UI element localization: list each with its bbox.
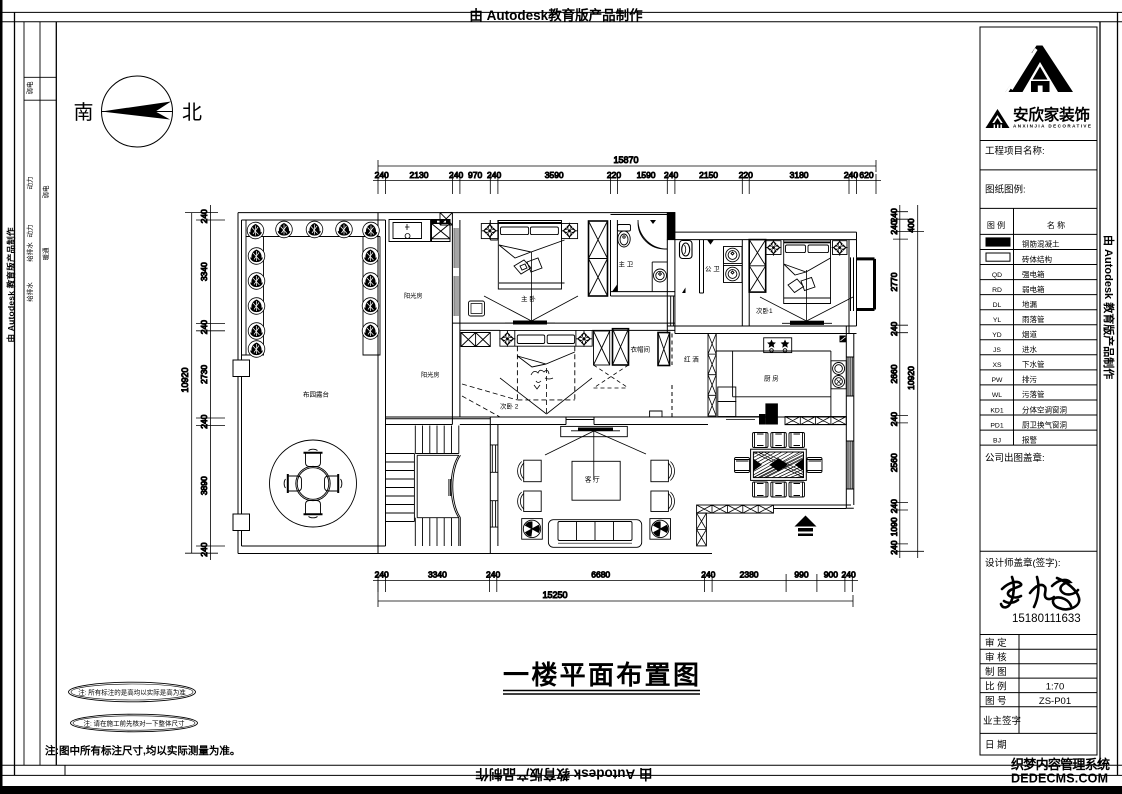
svg-text:DL: DL — [993, 302, 1002, 309]
svg-text:6680: 6680 — [591, 570, 610, 580]
svg-text:2660: 2660 — [889, 364, 899, 383]
svg-text:PW: PW — [992, 377, 1004, 384]
svg-text:地漏: 地漏 — [1022, 299, 1038, 309]
svg-text:1090: 1090 — [889, 517, 899, 536]
svg-text:审 定: 审 定 — [985, 637, 1007, 649]
svg-text:1:70: 1:70 — [1046, 682, 1065, 693]
svg-text:240: 240 — [449, 170, 463, 180]
svg-text:3180: 3180 — [790, 170, 809, 180]
svg-text:动力: 动力 — [25, 225, 34, 238]
svg-text:2560: 2560 — [889, 453, 899, 472]
svg-text:240: 240 — [889, 220, 899, 234]
svg-text:240: 240 — [889, 540, 899, 554]
svg-text:制 图: 制 图 — [985, 666, 1007, 678]
svg-text:公 卫: 公 卫 — [705, 265, 720, 273]
svg-text:分体空调窗洞: 分体空调窗洞 — [1022, 404, 1067, 414]
svg-text:KD1: KD1 — [990, 407, 1003, 414]
svg-text:3340: 3340 — [199, 262, 209, 281]
svg-text:990: 990 — [794, 570, 808, 580]
svg-text:日 期: 日 期 — [985, 740, 1007, 751]
svg-text:10920: 10920 — [906, 366, 916, 390]
svg-text:暖通: 暖通 — [41, 247, 50, 261]
svg-text:弱电: 弱电 — [25, 81, 34, 95]
svg-text:由 Autodesk教育版产品制作: 由 Autodesk教育版产品制作 — [469, 7, 643, 23]
svg-text:强电箱: 强电箱 — [1022, 269, 1045, 279]
svg-text:南: 南 — [74, 101, 94, 124]
svg-text:厨 房: 厨 房 — [764, 374, 779, 383]
svg-text:雨落管: 雨落管 — [1022, 314, 1045, 324]
svg-text:1590: 1590 — [637, 170, 656, 180]
svg-text:报警: 报警 — [1022, 434, 1038, 444]
svg-text:YL: YL — [993, 317, 1002, 324]
svg-text:2380: 2380 — [740, 570, 759, 580]
svg-text:主 卫: 主 卫 — [619, 260, 634, 269]
svg-text:240: 240 — [889, 412, 899, 426]
svg-text:下水管: 下水管 — [1022, 359, 1045, 369]
svg-text:阳光房: 阳光房 — [404, 292, 423, 300]
svg-text:400: 400 — [906, 218, 916, 232]
svg-text:PD1: PD1 — [990, 422, 1003, 429]
svg-text:客 厅: 客 厅 — [585, 475, 600, 484]
svg-text:RD: RD — [992, 287, 1002, 294]
svg-text:业主签字: 业主签字 — [983, 715, 1021, 727]
svg-text:240: 240 — [199, 209, 209, 223]
svg-text:排污: 排污 — [1022, 374, 1038, 384]
svg-text:YD: YD — [992, 332, 1002, 339]
svg-text:公司出图盖章:: 公司出图盖章: — [985, 452, 1045, 464]
svg-text:弱电箱: 弱电箱 — [1022, 284, 1045, 294]
svg-text:名 称: 名 称 — [1047, 220, 1065, 230]
svg-text:注: 请在施工前先核对一下整体尺寸: 注: 请在施工前先核对一下整体尺寸 — [83, 719, 185, 728]
svg-text:北: 北 — [182, 101, 202, 124]
svg-text:2770: 2770 — [889, 272, 899, 291]
svg-text:2150: 2150 — [699, 170, 718, 180]
svg-text:厨卫换气窗洞: 厨卫换气窗洞 — [1022, 419, 1067, 429]
svg-text:红 酒: 红 酒 — [684, 355, 699, 364]
svg-text:图 例: 图 例 — [987, 220, 1005, 230]
svg-text:240: 240 — [664, 170, 678, 180]
svg-text:240: 240 — [199, 414, 209, 428]
svg-text:布园露台: 布园露台 — [303, 390, 329, 399]
svg-text:JS: JS — [993, 347, 1001, 354]
svg-text:240: 240 — [842, 570, 856, 580]
svg-text:衣帽间: 衣帽间 — [631, 345, 651, 354]
svg-text:15870: 15870 — [613, 155, 638, 165]
svg-text:240: 240 — [375, 170, 389, 180]
svg-text:砖体结构: 砖体结构 — [1022, 254, 1052, 264]
svg-text:比 例: 比 例 — [985, 681, 1007, 693]
svg-text:由 Autodesk 教育版产品制作: 由 Autodesk 教育版产品制作 — [1102, 235, 1116, 379]
svg-text:240: 240 — [199, 320, 209, 334]
svg-text:220: 220 — [607, 170, 621, 180]
svg-text:烟道: 烟道 — [1022, 329, 1038, 339]
svg-text:240: 240 — [375, 570, 389, 580]
svg-text:BJ: BJ — [993, 437, 1001, 444]
svg-text:240: 240 — [844, 170, 858, 180]
svg-text:10920: 10920 — [180, 367, 190, 392]
svg-text:一楼平面布置图: 一楼平面布置图 — [503, 660, 699, 690]
svg-text:图 号: 图 号 — [985, 696, 1007, 707]
svg-text:900: 900 — [824, 570, 838, 580]
svg-text:3890: 3890 — [199, 476, 209, 495]
svg-text:安欣家装饰: 安欣家装饰 — [1013, 105, 1090, 124]
svg-text:15250: 15250 — [542, 590, 567, 600]
svg-text:设计师盖章(签字):: 设计师盖章(签字): — [985, 557, 1060, 569]
svg-text:主 卧: 主 卧 — [521, 294, 536, 303]
svg-text:织梦内容管理系统: 织梦内容管理系统 — [1011, 757, 1110, 772]
svg-text:2730: 2730 — [199, 365, 209, 384]
svg-text:2130: 2130 — [410, 170, 429, 180]
svg-text:240: 240 — [487, 170, 501, 180]
svg-text:污落管: 污落管 — [1022, 389, 1045, 399]
svg-text:弱电: 弱电 — [41, 185, 50, 199]
svg-text:ZS-P01: ZS-P01 — [1039, 696, 1071, 707]
svg-text:进水: 进水 — [1022, 344, 1038, 354]
svg-text:220: 220 — [739, 170, 753, 180]
svg-text:620: 620 — [859, 170, 873, 180]
svg-text:由 Autodesk 教育版产品制作: 由 Autodesk 教育版产品制作 — [475, 767, 653, 783]
svg-text:XS: XS — [992, 362, 1002, 369]
svg-text:240: 240 — [199, 542, 209, 556]
svg-text:注:图中所有标注尺寸,均以实际测量为准。: 注:图中所有标注尺寸,均以实际测量为准。 — [45, 744, 240, 757]
svg-text:3340: 3340 — [428, 570, 447, 580]
svg-text:次卧1: 次卧1 — [756, 306, 773, 315]
svg-text:240: 240 — [889, 499, 899, 513]
svg-text:由 Autodesk 教育版产品制作: 由 Autodesk 教育版产品制作 — [6, 227, 16, 342]
svg-text:3590: 3590 — [545, 170, 564, 180]
svg-text:970: 970 — [468, 170, 482, 180]
svg-text:给排水: 给排水 — [25, 282, 34, 302]
svg-text:240: 240 — [486, 570, 500, 580]
svg-text:工程项目名称:: 工程项目名称: — [985, 145, 1045, 157]
svg-text:QD: QD — [992, 272, 1002, 279]
svg-text:240: 240 — [889, 208, 899, 222]
svg-text:阳光房: 阳光房 — [421, 371, 440, 379]
svg-text:图纸图例:: 图纸图例: — [985, 184, 1026, 196]
svg-text:动力: 动力 — [25, 177, 34, 190]
svg-text:DEDECMS.COM: DEDECMS.COM — [1011, 772, 1108, 786]
svg-text:给排水: 给排水 — [25, 242, 34, 262]
svg-text:钢筋混凝土: 钢筋混凝土 — [1022, 239, 1060, 249]
svg-text:WL: WL — [992, 392, 1002, 399]
svg-text:15180111633: 15180111633 — [1012, 613, 1081, 625]
svg-text:次卧 2: 次卧 2 — [500, 402, 519, 411]
svg-text:注: 所有标注的是高均以实际是高为准: 注: 所有标注的是高均以实际是高为准 — [78, 688, 186, 697]
svg-text:审 核: 审 核 — [985, 652, 1007, 664]
svg-text:240: 240 — [889, 322, 899, 336]
svg-text:240: 240 — [701, 570, 715, 580]
